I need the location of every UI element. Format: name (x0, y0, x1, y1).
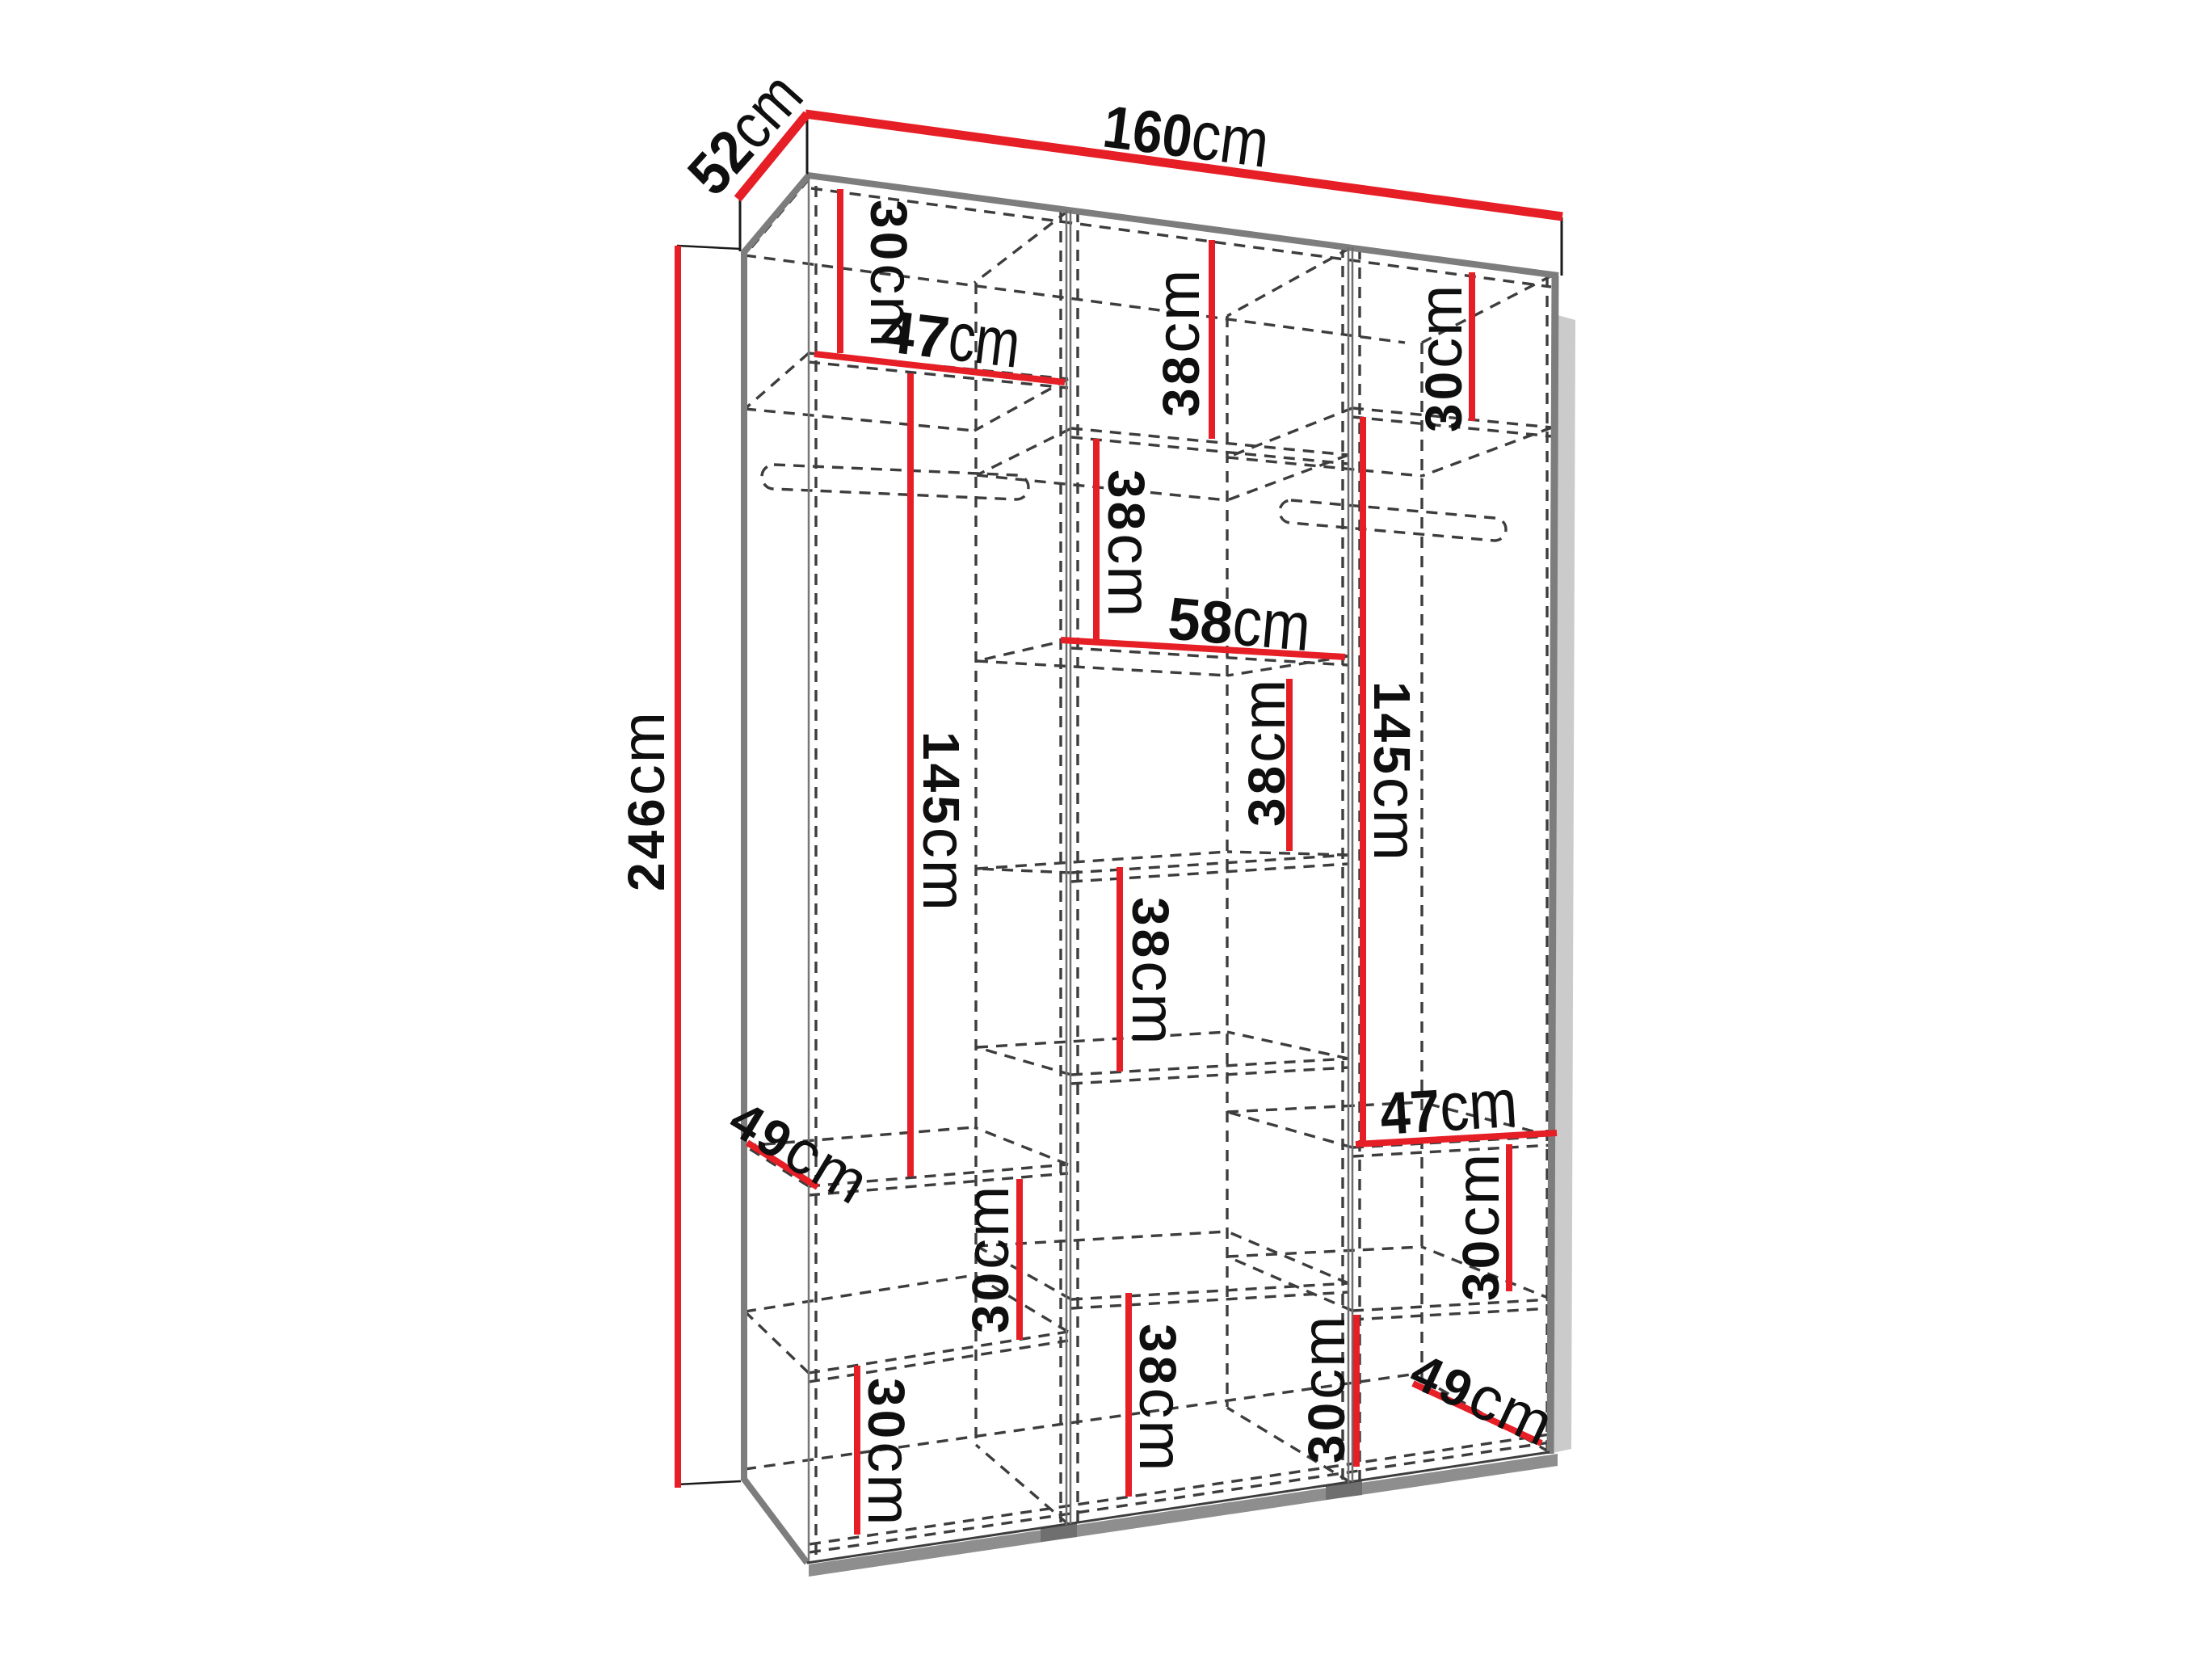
svg-text:38cm: 38cm (1095, 469, 1163, 619)
svg-text:30cm: 30cm (1289, 1315, 1358, 1464)
svg-text:145cm: 145cm (1360, 681, 1429, 862)
svg-text:30cm: 30cm (1444, 1152, 1512, 1302)
svg-text:30cm: 30cm (953, 1185, 1022, 1334)
svg-text:30cm: 30cm (855, 1378, 923, 1527)
svg-text:145cm: 145cm (910, 731, 978, 912)
svg-text:246cm: 246cm (609, 710, 678, 891)
svg-text:38cm: 38cm (1144, 268, 1213, 418)
svg-text:38cm: 38cm (1126, 1324, 1195, 1473)
svg-text:30cm: 30cm (1407, 284, 1475, 433)
svg-text:38cm: 38cm (1230, 678, 1298, 827)
svg-text:58cm: 58cm (1165, 577, 1314, 666)
svg-text:38cm: 38cm (1119, 897, 1188, 1046)
